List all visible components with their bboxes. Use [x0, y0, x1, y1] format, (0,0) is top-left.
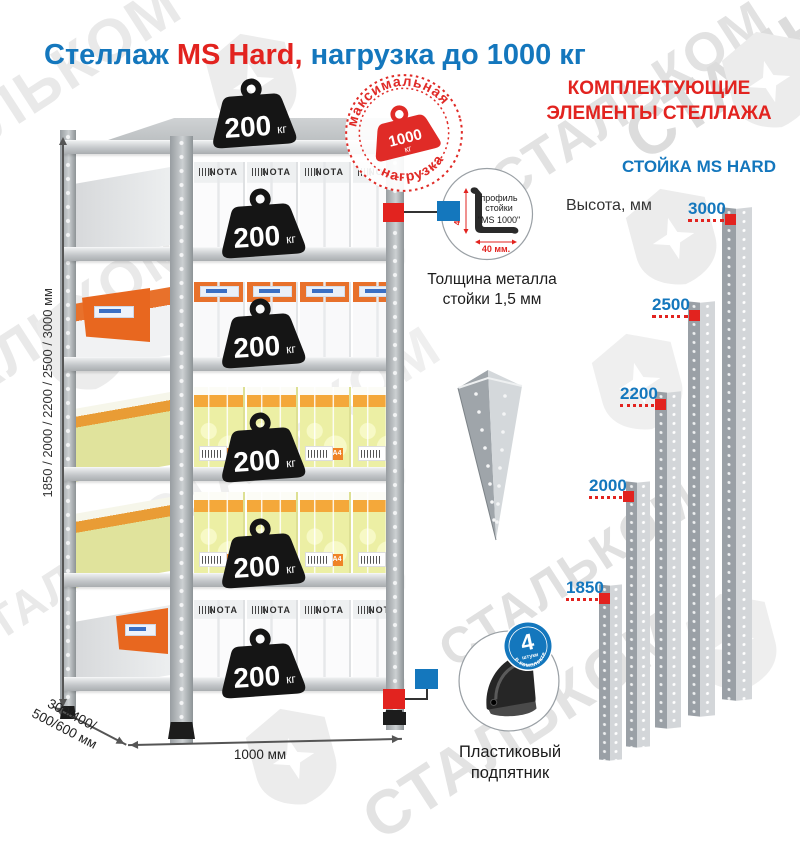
stand-top-marker	[689, 310, 700, 321]
components-heading: КОМПЛЕКТУЮЩИЕ ЭЛЕМЕНТЫ СТЕЛЛАЖА	[543, 76, 775, 126]
shelf-post-front-left	[170, 136, 193, 744]
height-dimension-label: 1850 / 2000 / 2200 / 2500 / 3000 мм	[40, 288, 55, 497]
stand-top-marker	[725, 214, 736, 225]
svg-text:кг: кг	[286, 342, 297, 357]
stand-top-marker	[623, 491, 634, 502]
svg-text:200: 200	[232, 660, 281, 694]
barcode-icon	[252, 168, 266, 176]
barcode-icon	[305, 168, 319, 176]
stand-height-label: 2500	[652, 295, 690, 315]
shield-watermark-icon	[618, 176, 728, 298]
stand-2200	[655, 392, 680, 728]
quantity-badge: 4 штуки в комплекте	[497, 615, 559, 677]
leader-dots	[620, 404, 654, 407]
weight-badge: 200кг	[204, 294, 321, 376]
weight-badge: 200кг	[204, 408, 321, 490]
box-flap-label	[125, 624, 156, 636]
svg-text:профиль: профиль	[480, 193, 518, 203]
box-brand-label: NOTA	[262, 167, 291, 177]
leader-dots	[688, 219, 724, 222]
stand-subheading: СТОЙКА MS HARD	[618, 157, 780, 177]
svg-text:200: 200	[232, 444, 281, 478]
infographic-root: { "title": {"part1": "Стеллаж ", "part2"…	[0, 0, 800, 800]
stand-2000	[626, 482, 650, 747]
stand-2500	[688, 302, 715, 716]
title-part-2: MS Hard,	[177, 39, 303, 71]
width-dimension-label: 1000 мм	[200, 747, 320, 762]
box-brand-label: NOTA	[209, 167, 238, 177]
box-brand-label: NOTA	[209, 605, 238, 615]
svg-text:200: 200	[232, 220, 281, 254]
stand-1850	[599, 585, 622, 760]
weight-badge: 200кг	[204, 514, 321, 596]
svg-text:40 мм.: 40 мм.	[482, 244, 510, 254]
svg-text:200: 200	[232, 550, 281, 584]
shelf-foot	[168, 722, 195, 739]
profile-caption: Толщина металла стойки 1,5 мм	[402, 270, 582, 310]
height-dimension-line	[62, 140, 64, 704]
plastic-foot-caption: Пластиковый подпятник	[415, 742, 605, 784]
stand-height-label: 3000	[688, 199, 726, 219]
box-brand-label: NOTA	[315, 605, 344, 615]
leader-dots	[589, 496, 622, 499]
title-part-1: Стеллаж	[44, 39, 177, 71]
svg-text:кг: кг	[277, 122, 288, 137]
stand-corner-piece	[448, 362, 538, 562]
barcode-icon	[358, 606, 372, 614]
svg-text:200: 200	[232, 330, 281, 364]
box-flap-label	[94, 306, 133, 318]
foot-marker-red	[383, 689, 405, 709]
weight-badge: 200кг	[195, 74, 312, 156]
weight-badge: 200кг	[204, 184, 321, 266]
barcode-icon	[358, 446, 386, 461]
barcode-icon	[358, 552, 386, 567]
barcode-icon	[305, 606, 319, 614]
svg-text:кг: кг	[286, 562, 297, 577]
box-flap	[82, 288, 150, 342]
svg-text:кг: кг	[286, 672, 297, 687]
box-lid-label	[200, 286, 239, 297]
svg-text:кг: кг	[286, 232, 297, 247]
stand-top-marker	[599, 593, 610, 604]
foot-connector-line	[404, 698, 428, 700]
components-heading-line2: ЭЛЕМЕНТЫ СТЕЛЛАЖА	[543, 101, 775, 126]
stand-3000	[722, 208, 752, 700]
box-brand-label: NOTA	[262, 605, 291, 615]
leader-dots	[652, 315, 688, 318]
profile-marker-blue	[437, 201, 460, 221]
weight-badge: 200кг	[204, 624, 321, 706]
foot-marker-blue	[415, 669, 438, 689]
components-heading-line1: КОМПЛЕКТУЮЩИЕ	[543, 76, 775, 101]
stand-top-marker	[655, 399, 666, 410]
leader-dots	[566, 598, 598, 601]
profile-connector-line	[404, 211, 439, 213]
barcode-icon	[199, 168, 213, 176]
svg-text:кг: кг	[286, 456, 297, 471]
barcode-icon	[252, 606, 266, 614]
height-units-label: Высота, мм	[566, 197, 652, 215]
stand-height-label: 2000	[589, 476, 627, 496]
stand-height-label: 2200	[620, 384, 658, 404]
plastic-foot-on-post	[383, 712, 406, 725]
svg-text:"MS 1000": "MS 1000"	[478, 215, 520, 225]
svg-text:стойки: стойки	[485, 203, 513, 213]
barcode-icon	[199, 606, 213, 614]
box-brand-label: NOTA	[315, 167, 344, 177]
page-title: Стеллаж MS Hard, нагрузка до 1000 кг	[44, 39, 586, 72]
svg-text:200: 200	[223, 110, 272, 144]
